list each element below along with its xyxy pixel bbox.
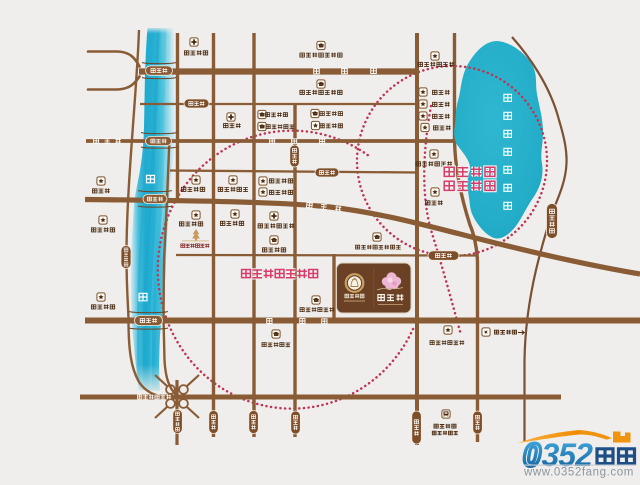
svg-text:www.0352fang.com: www.0352fang.com xyxy=(523,467,634,479)
